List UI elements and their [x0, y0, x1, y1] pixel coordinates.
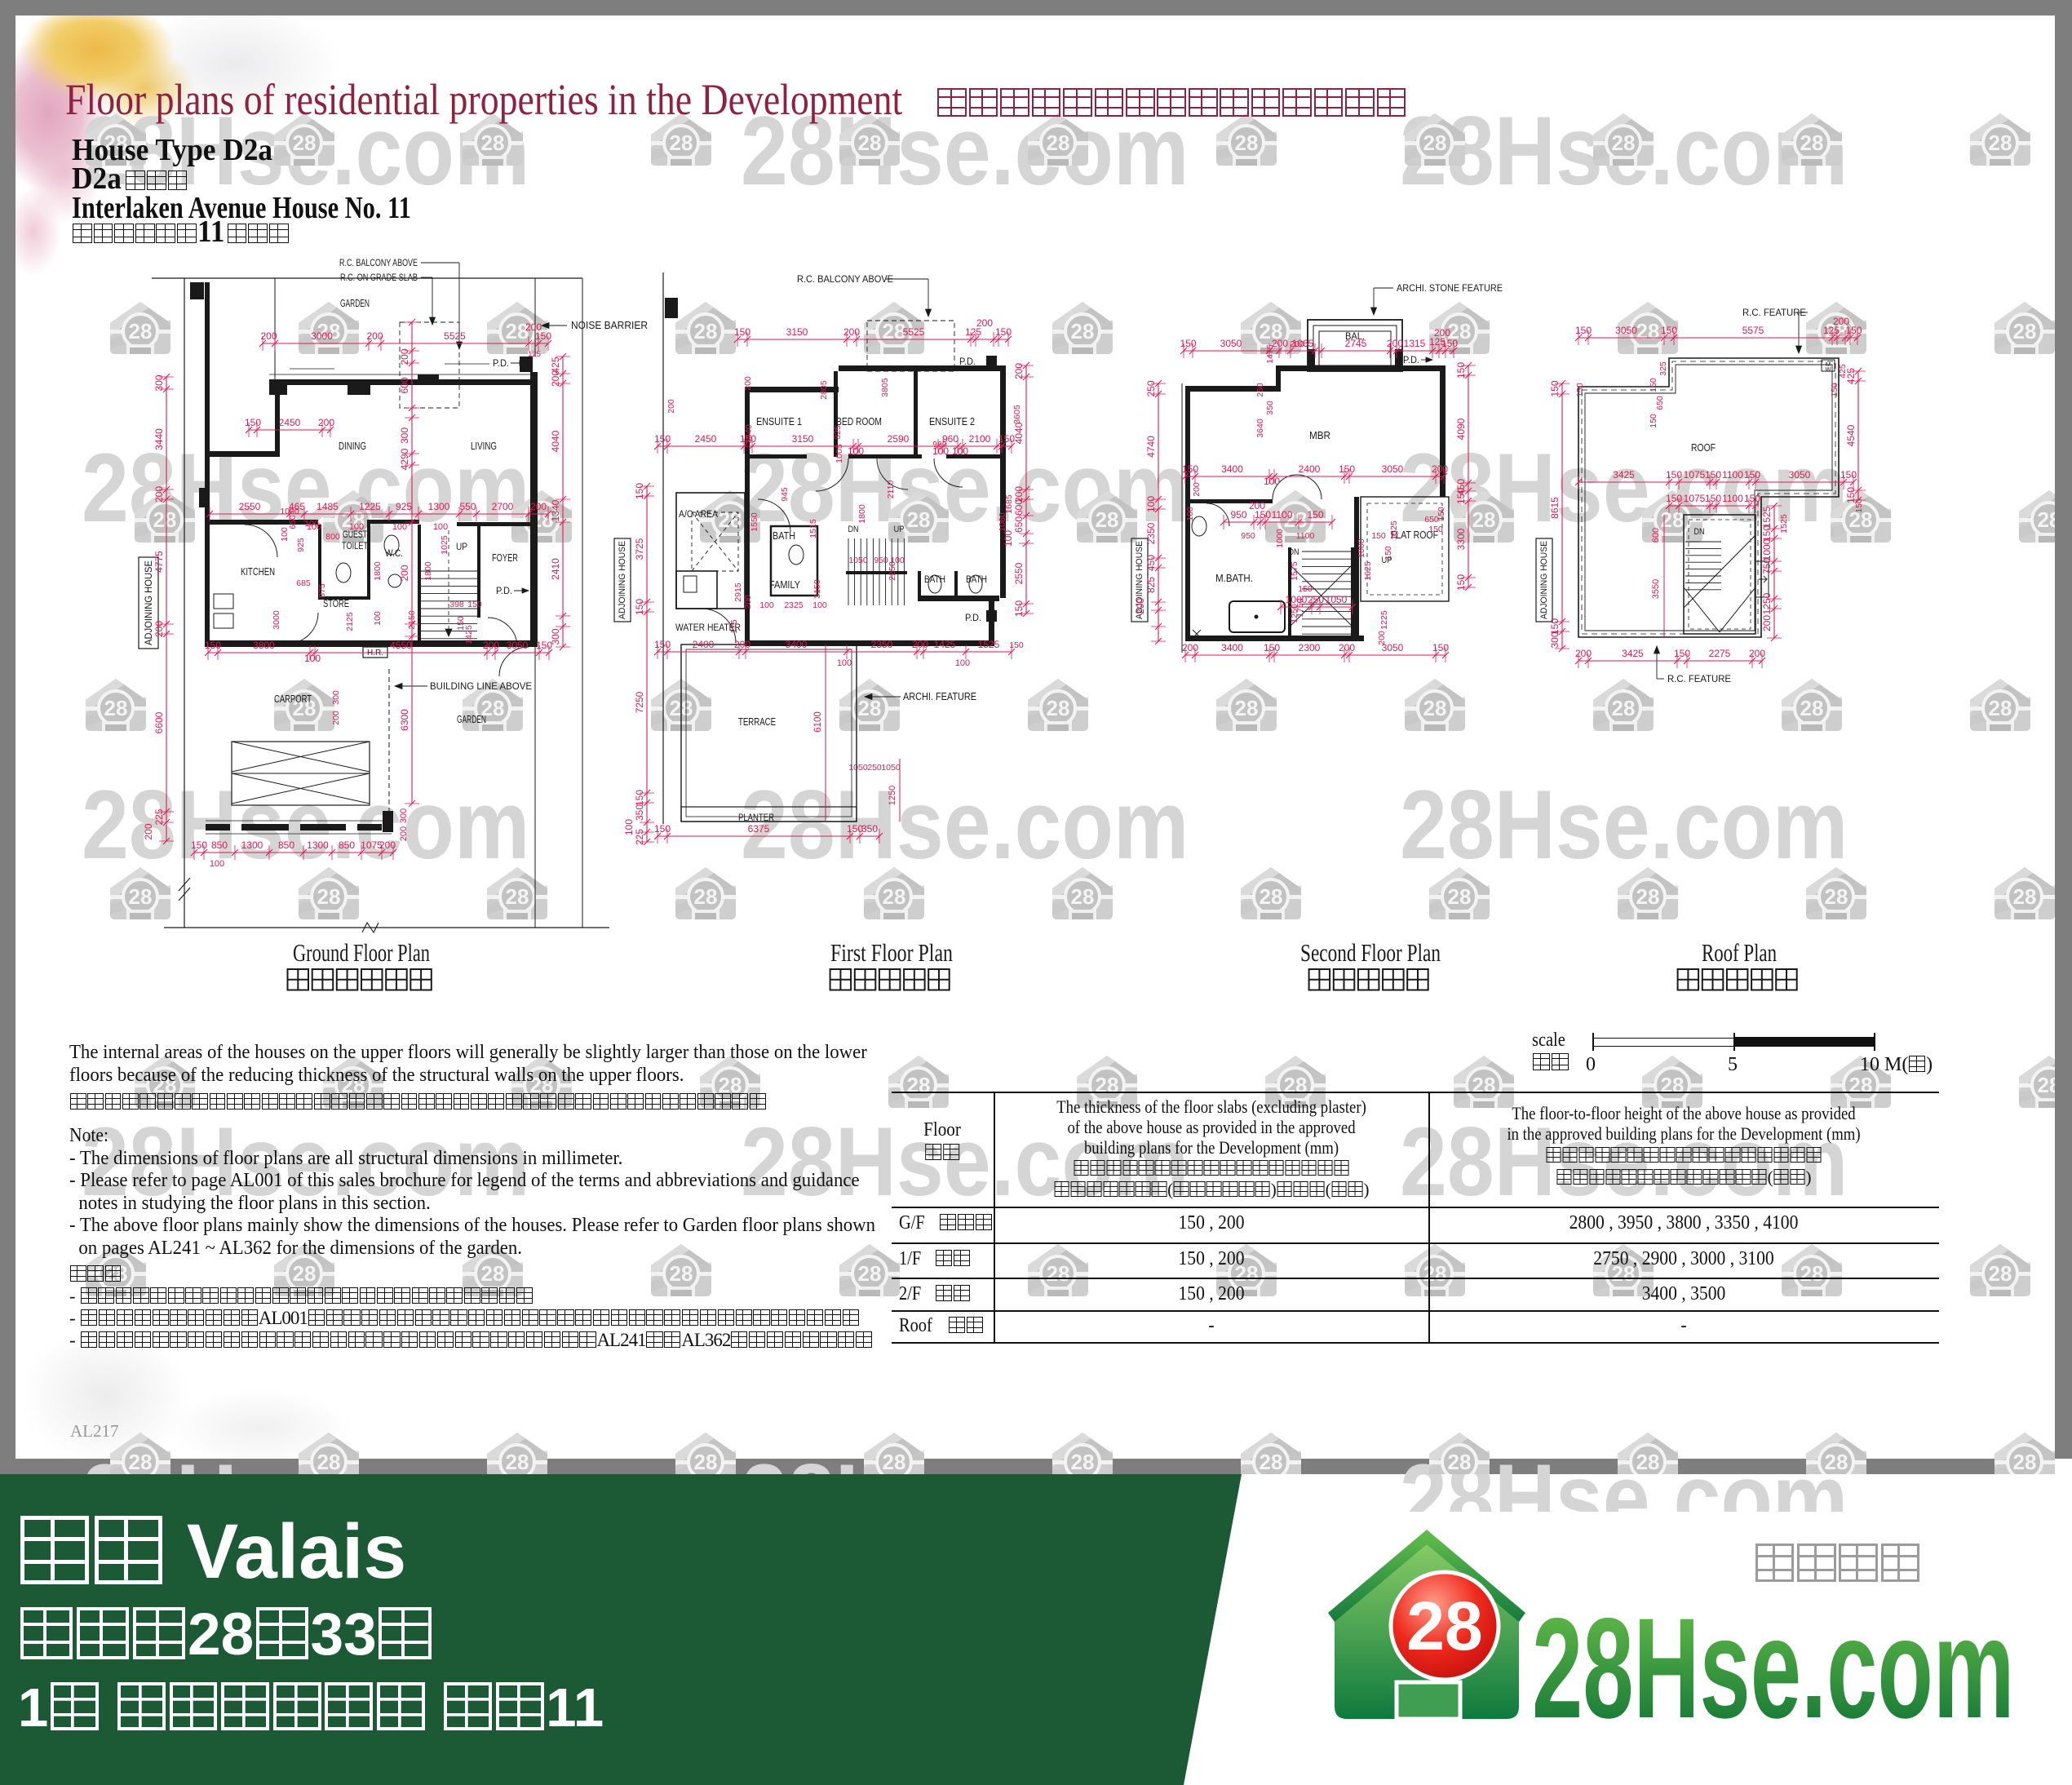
svg-text:28: 28	[1406, 1588, 1482, 1664]
svg-text:28Hse.com: 28Hse.com	[1532, 1589, 2014, 1748]
